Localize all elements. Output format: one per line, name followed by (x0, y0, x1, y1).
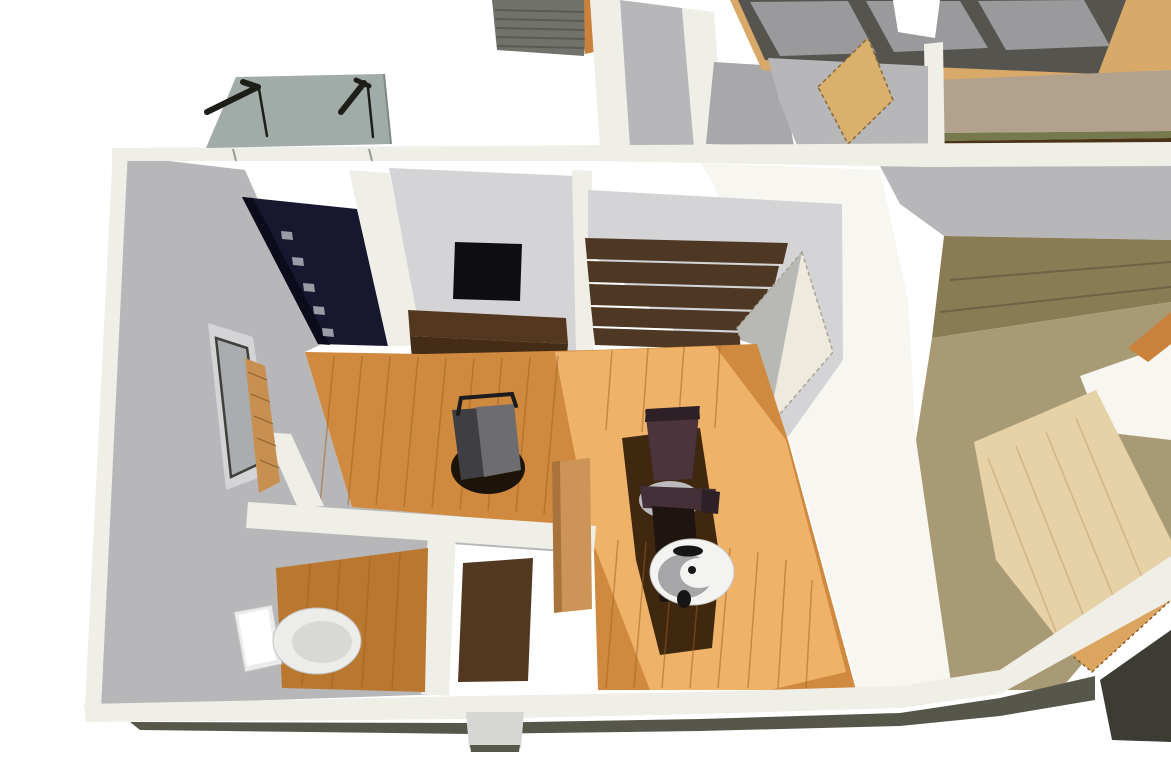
wall-face-between-strips (620, 0, 694, 147)
floorplan-3d-scene (0, 0, 1171, 777)
roof-fragment (492, 0, 598, 56)
entrance-step (466, 712, 524, 748)
stool-seat (476, 404, 521, 477)
render-viewport (0, 0, 1171, 777)
basin-faucet (677, 590, 691, 608)
toilet-seat (292, 621, 352, 663)
glass-entrance-canopy (206, 74, 391, 148)
entrance-step-shadow (470, 745, 520, 752)
basin-top-slot (673, 546, 703, 557)
basin-inner-highlight (680, 558, 718, 588)
basin-drain (688, 566, 696, 574)
entry-mat (458, 558, 533, 682)
wall-mounted-tv (453, 242, 522, 301)
wall-corner-highlight (893, 0, 940, 38)
chair-armrest (701, 489, 720, 514)
taupe-wall (936, 70, 1171, 133)
